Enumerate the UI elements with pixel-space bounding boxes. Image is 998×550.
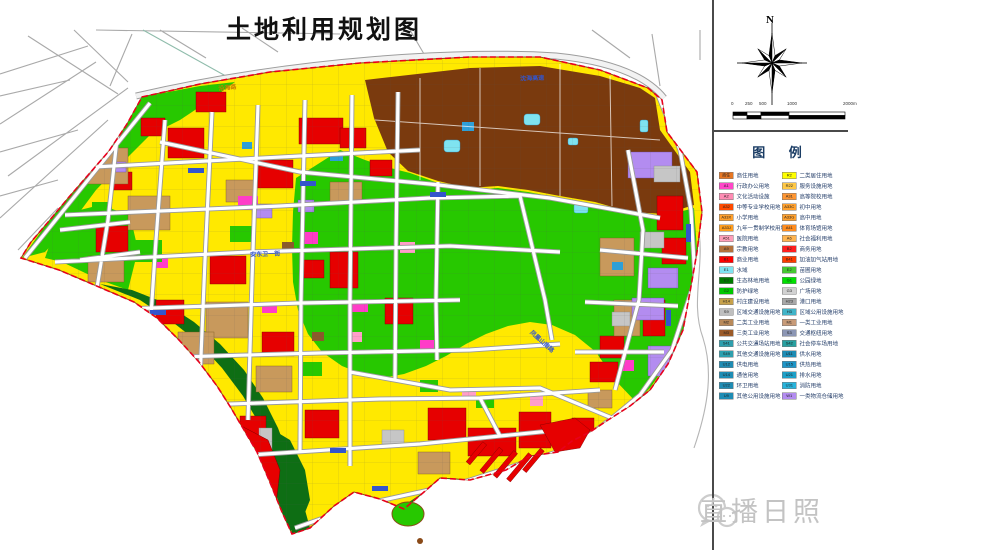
legend-swatch: U22 bbox=[719, 382, 734, 389]
legend-swatch: A1 bbox=[719, 182, 734, 189]
legend-label: 高等院校用地 bbox=[800, 192, 833, 200]
legend-swatch: G1 bbox=[782, 277, 797, 284]
legend-label: 排水用地 bbox=[800, 371, 822, 379]
legend-swatch: A33J bbox=[719, 224, 734, 231]
scale-tick-label: 500 bbox=[759, 101, 767, 106]
legend-swatch: H23 bbox=[782, 298, 797, 305]
legend-swatch: B2 bbox=[782, 245, 797, 252]
legend-swatch: B41 bbox=[782, 256, 797, 263]
panel-divider-vertical bbox=[712, 0, 714, 550]
legend-column-1: R2二类居住用地R22服务设施用地A31高等院校用地A33C初中用地A33G高中… bbox=[782, 170, 857, 401]
legend-swatch: B1 bbox=[719, 256, 734, 263]
legend-item: A6社会福利用地 bbox=[782, 233, 857, 244]
legend-swatch: A33C bbox=[782, 203, 797, 210]
legend-swatch: S41 bbox=[719, 340, 734, 347]
legend-swatch: A41 bbox=[782, 224, 797, 231]
compass-rose bbox=[737, 23, 807, 105]
legend: 商住商住用地A1行政办公用地A2文化活动设施A32中等专业学校用地A33X小学用… bbox=[719, 170, 865, 405]
panel-divider-horizontal bbox=[712, 130, 848, 132]
legend-swatch: S3 bbox=[782, 329, 797, 336]
legend-label: 小学用地 bbox=[737, 213, 759, 221]
legend-swatch: U12 bbox=[719, 361, 734, 368]
scale-tick-label: 0 bbox=[731, 101, 734, 106]
legend-swatch: A9 bbox=[719, 245, 734, 252]
legend-item: M1一类工业用地 bbox=[782, 317, 857, 328]
legend-item: U15供热用地 bbox=[782, 359, 857, 370]
legend-item: B41加油加气站用地 bbox=[782, 254, 857, 265]
legend-swatch: E2 bbox=[782, 266, 797, 273]
scale-tick-label: 2000m bbox=[843, 101, 857, 106]
legend-swatch: U11 bbox=[782, 350, 797, 357]
legend-title: 图 例 bbox=[712, 142, 842, 161]
legend-swatch: U21 bbox=[782, 371, 797, 378]
legend-label: 苗圃用地 bbox=[800, 266, 822, 274]
legend-label: 防护绿地 bbox=[737, 287, 759, 295]
small-island bbox=[417, 538, 423, 544]
legend-swatch: M1 bbox=[782, 319, 797, 326]
legend-swatch: M2 bbox=[719, 319, 734, 326]
legend-label: 区域公用设施用地 bbox=[800, 308, 844, 316]
legend-item: E2苗圃用地 bbox=[782, 265, 857, 276]
legend-item: W1一类物流仓储用地 bbox=[782, 391, 857, 402]
legend-label: 生态林地用地 bbox=[737, 276, 770, 284]
road-label: 沈海高速 bbox=[520, 73, 544, 82]
legend-item: R2二类居住用地 bbox=[782, 170, 857, 181]
legend-swatch: G3 bbox=[782, 287, 797, 294]
legend-label: 供水用地 bbox=[800, 350, 822, 358]
parcel-grid-texture bbox=[21, 57, 702, 534]
legend-label: 商住用地 bbox=[737, 171, 759, 179]
legend-label: 社会停车场用地 bbox=[800, 339, 839, 347]
legend-label: 体育场馆用地 bbox=[800, 224, 833, 232]
legend-swatch: H14 bbox=[719, 298, 734, 305]
legend-label: 宗教用地 bbox=[737, 245, 759, 253]
legend-swatch: R2 bbox=[782, 172, 797, 179]
legend-swatch: S9 bbox=[719, 308, 734, 315]
scale-bar bbox=[733, 112, 845, 119]
legend-swatch: A6 bbox=[782, 235, 797, 242]
legend-swatch: E1 bbox=[719, 266, 734, 273]
legend-swatch: E3 bbox=[719, 277, 734, 284]
legend-swatch: R22 bbox=[782, 182, 797, 189]
legend-swatch: A32 bbox=[719, 203, 734, 210]
legend-swatch: A33X bbox=[719, 214, 734, 221]
legend-label: 文化活动设施 bbox=[737, 192, 770, 200]
legend-label: 一类物流仓储用地 bbox=[800, 392, 844, 400]
legend-item: R22服务设施用地 bbox=[782, 181, 857, 192]
legend-item: S42社会停车场用地 bbox=[782, 338, 857, 349]
watermark-text: 直播日照 bbox=[700, 490, 824, 529]
legend-swatch: U15 bbox=[782, 361, 797, 368]
legend-label: 医院用地 bbox=[737, 234, 759, 242]
legend-swatch: S49 bbox=[719, 350, 734, 357]
legend-item: A31高等院校用地 bbox=[782, 191, 857, 202]
legend-swatch: G2 bbox=[719, 287, 734, 294]
legend-label: 其他公用设施用地 bbox=[737, 392, 781, 400]
legend-label: 区域交通设施用地 bbox=[737, 308, 781, 316]
legend-swatch: S42 bbox=[782, 340, 797, 347]
legend-label: 行政办公用地 bbox=[737, 182, 770, 190]
legend-label: 二类工业用地 bbox=[737, 318, 770, 326]
legend-label: 初中用地 bbox=[800, 203, 822, 211]
legend-label: 供电用地 bbox=[737, 360, 759, 368]
legend-swatch: W1 bbox=[782, 392, 797, 399]
legend-item: S3交通枢纽用地 bbox=[782, 328, 857, 339]
watermark: 直播日照 bbox=[692, 490, 824, 529]
legend-swatch: U9 bbox=[719, 392, 734, 399]
legend-item: H23港口用地 bbox=[782, 296, 857, 307]
legend-label: 水域 bbox=[737, 266, 748, 274]
scale-tick-label: 1000 bbox=[787, 101, 797, 106]
compass-north-label: N bbox=[766, 14, 774, 26]
legend-item: B2商务用地 bbox=[782, 244, 857, 255]
legend-label: 公共交通场站用地 bbox=[737, 339, 781, 347]
legend-label: 消防用地 bbox=[800, 381, 822, 389]
scale-tick-label: 250 bbox=[745, 101, 753, 106]
legend-item: A41体育场馆用地 bbox=[782, 223, 857, 234]
land-use-plan-screenshot: { "title": "土地利用规划图", "compass": { "nort… bbox=[0, 0, 998, 550]
resort-park-green bbox=[189, 452, 241, 492]
legend-label: 公园绿地 bbox=[800, 276, 822, 284]
legend-item: G1公园绿地 bbox=[782, 275, 857, 286]
legend-label: 三类工业用地 bbox=[737, 329, 770, 337]
legend-swatch: M3 bbox=[719, 329, 734, 336]
pond-west-2 bbox=[210, 495, 226, 505]
road-label: 安东卫一街 bbox=[250, 249, 280, 259]
legend-swatch: A31 bbox=[782, 193, 797, 200]
legend-item: U11供水用地 bbox=[782, 349, 857, 360]
legend-label: 一类工业用地 bbox=[800, 318, 833, 326]
legend-swatch: H3 bbox=[782, 308, 797, 315]
legend-label: 广场用地 bbox=[800, 287, 822, 295]
legend-swatch: U14 bbox=[719, 371, 734, 378]
legend-item: H3区域公用设施用地 bbox=[782, 307, 857, 318]
legend-label: 商务用地 bbox=[800, 245, 822, 253]
legend-label: 其他交通设施用地 bbox=[737, 350, 781, 358]
legend-swatch: A2 bbox=[719, 193, 734, 200]
legend-label: 村庄建设用地 bbox=[737, 297, 770, 305]
legend-label: 港口用地 bbox=[800, 297, 822, 305]
legend-label: 通信用地 bbox=[737, 371, 759, 379]
legend-label: 九年一贯制学校用地 bbox=[737, 224, 787, 232]
page-title: 土地利用规划图 bbox=[226, 10, 422, 46]
legend-label: 中等专业学校用地 bbox=[737, 203, 781, 211]
pond-west bbox=[198, 470, 216, 482]
legend-item: A33G高中用地 bbox=[782, 212, 857, 223]
legend-label: 环卫用地 bbox=[737, 381, 759, 389]
legend-item: A33C初中用地 bbox=[782, 202, 857, 213]
legend-swatch: 商住 bbox=[719, 172, 734, 179]
legend-swatch: U31 bbox=[782, 382, 797, 389]
legend-label: 商业用地 bbox=[737, 255, 759, 263]
legend-label: 高中用地 bbox=[800, 213, 822, 221]
legend-item: U21排水用地 bbox=[782, 370, 857, 381]
legend-label: 供热用地 bbox=[800, 360, 822, 368]
legend-label: 二类居住用地 bbox=[800, 171, 833, 179]
legend-label: 服务设施用地 bbox=[800, 182, 833, 190]
legend-label: 加油加气站用地 bbox=[800, 255, 839, 263]
legend-item: U31消防用地 bbox=[782, 380, 857, 391]
legend-label: 交通枢纽用地 bbox=[800, 329, 833, 337]
legend-label: 社会福利用地 bbox=[800, 234, 833, 242]
legend-swatch: A51 bbox=[719, 235, 734, 242]
legend-swatch: A33G bbox=[782, 214, 797, 221]
legend-item: G3广场用地 bbox=[782, 286, 857, 297]
